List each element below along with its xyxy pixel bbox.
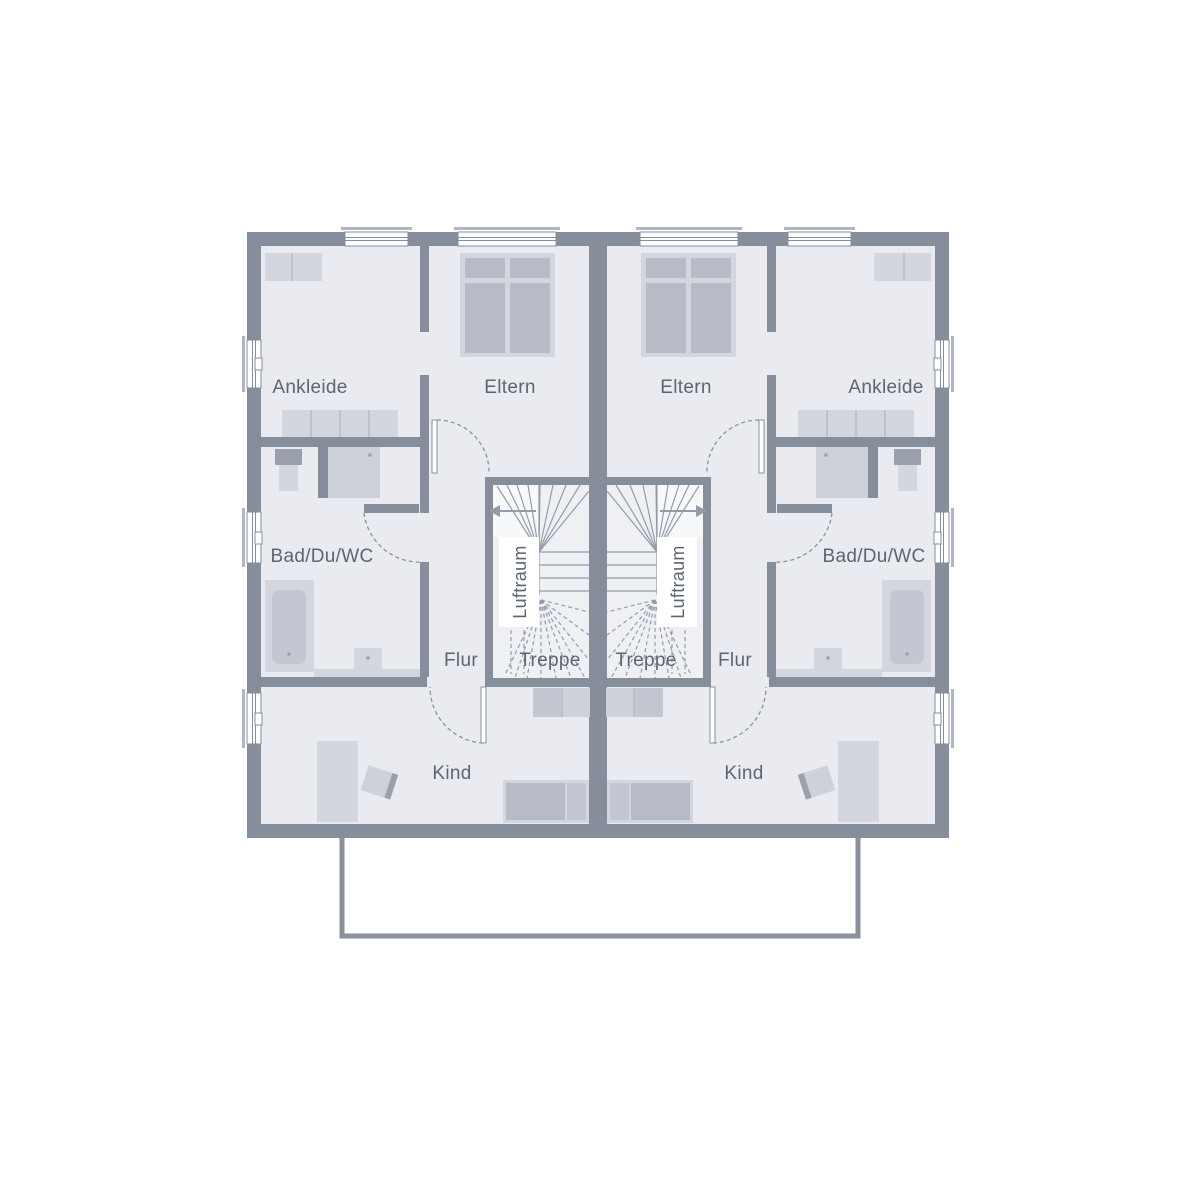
label-bad-right: Bad/Du/WC	[822, 546, 925, 567]
label-ankleide-right: Ankleide	[848, 377, 923, 398]
label-eltern-left: Eltern	[484, 377, 535, 398]
party-wall	[589, 232, 607, 838]
label-eltern-right: Eltern	[660, 377, 711, 398]
label-flur-left: Flur	[444, 650, 478, 671]
floor-plan-page: Ankleide Ankleide Eltern Eltern Bad/Du/W…	[0, 0, 1200, 1200]
label-kind-left: Kind	[432, 763, 471, 784]
label-ankleide-left: Ankleide	[272, 377, 347, 398]
label-luftraum-left: Luftraum	[510, 545, 530, 618]
label-flur-right: Flur	[718, 650, 752, 671]
label-luftraum-right: Luftraum	[668, 545, 688, 618]
label-treppe-left: Treppe	[519, 650, 580, 671]
label-bad-left: Bad/Du/WC	[270, 546, 373, 567]
label-kind-right: Kind	[724, 763, 763, 784]
floor-plan-svg: Ankleide Ankleide Eltern Eltern Bad/Du/W…	[0, 0, 1200, 1200]
label-treppe-right: Treppe	[615, 650, 676, 671]
